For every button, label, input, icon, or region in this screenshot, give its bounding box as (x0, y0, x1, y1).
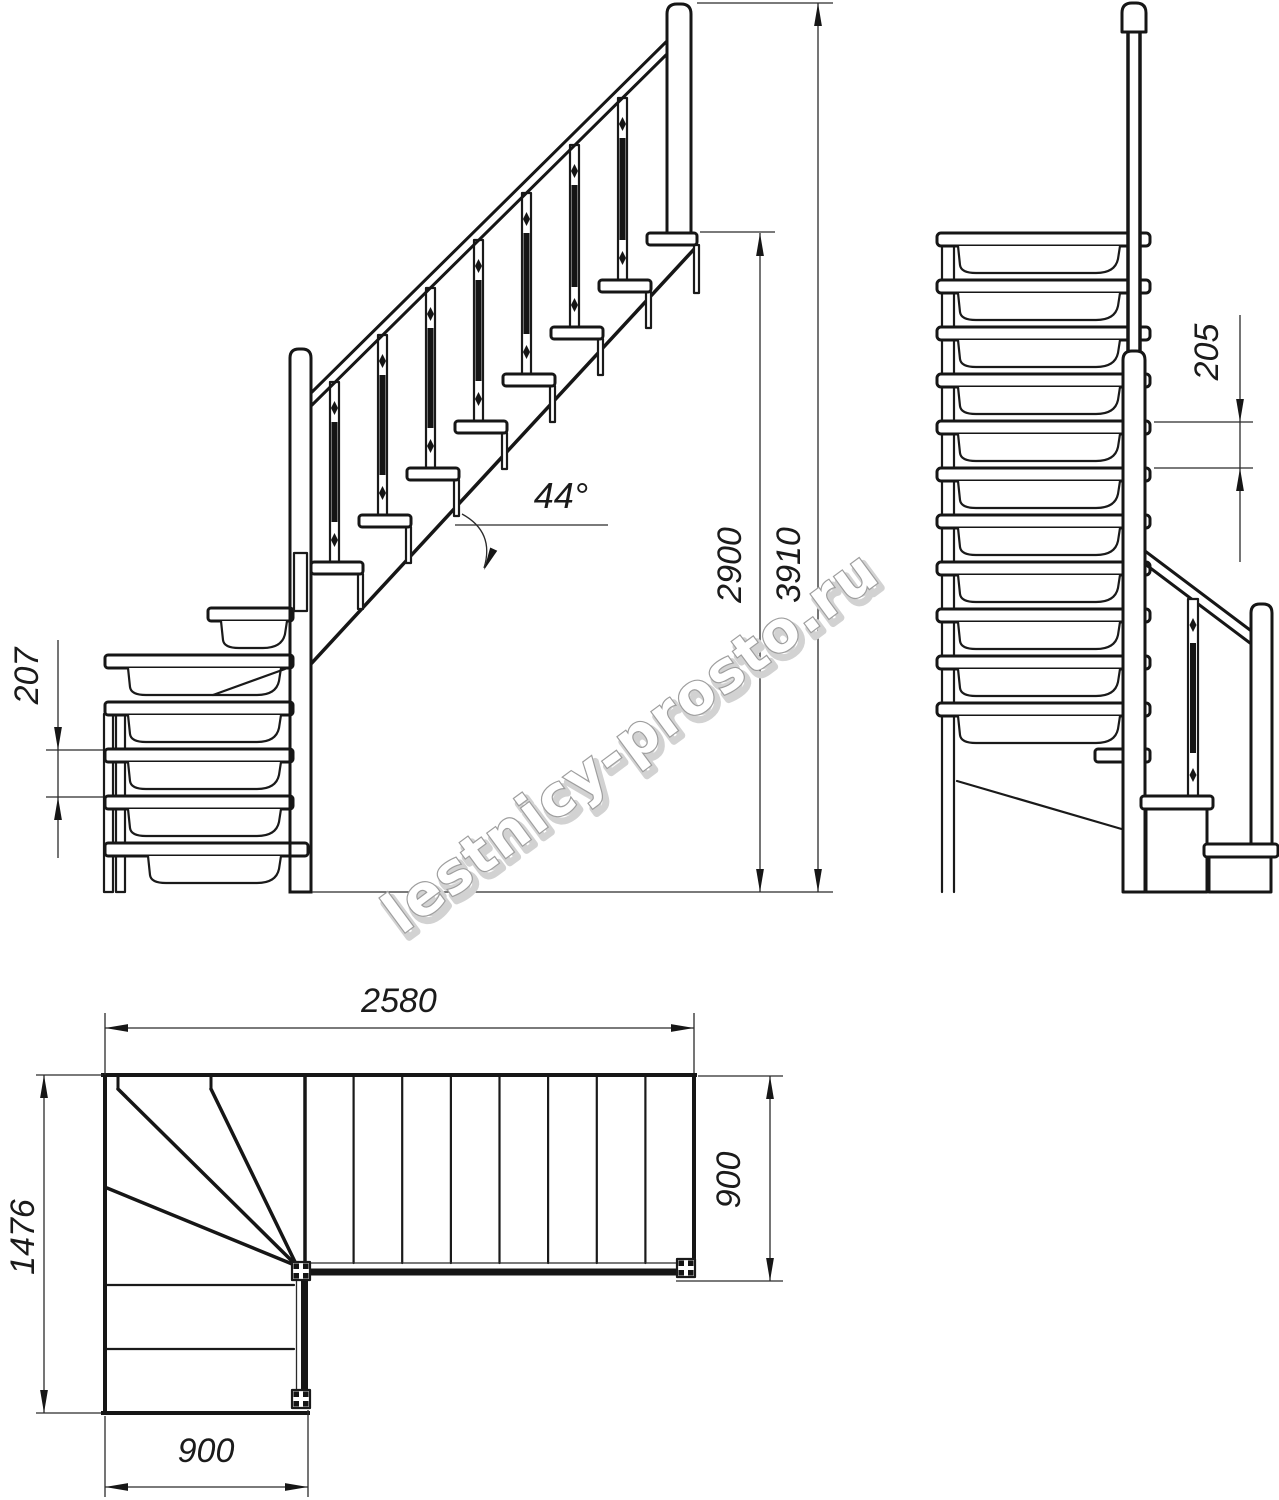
plan-end-newel (677, 1259, 695, 1277)
front-elevation-view (937, 3, 1278, 892)
angle-annotation: 44° (455, 475, 608, 572)
front-winder-edge (957, 781, 1125, 830)
front-baluster (1188, 599, 1198, 797)
dimension-landing-height: 2900 (700, 232, 775, 892)
dim-900-right-label: 900 (710, 1152, 748, 1209)
plan-corner-newel (292, 1262, 310, 1280)
side-winder-steps (104, 608, 308, 892)
dimension-total-run: 2580 (105, 982, 694, 1075)
front-upper-handrail (1128, 30, 1140, 352)
dim-207-label: 207 (8, 647, 46, 706)
plan-lower-treads (107, 1285, 294, 1349)
plan-view (101, 1073, 697, 1413)
plan-handrails (297, 1263, 678, 1390)
dimension-plan-depth: 1476 (4, 1075, 103, 1413)
plan-outline (101, 1073, 697, 1413)
front-handrail-cap (1122, 3, 1146, 32)
dim-900-bottom-label: 900 (178, 1432, 235, 1470)
side-top-newel-post (667, 4, 691, 233)
plan-newel-posts (292, 1259, 695, 1408)
dimension-total-height: 3910 (697, 3, 833, 892)
plan-winder-fan (107, 1077, 297, 1266)
watermark-text: lestnicy-prosto.ru (371, 538, 891, 946)
front-right-newel-post (1251, 604, 1272, 847)
dimension-winder-rise: 207 (8, 640, 103, 858)
plan-entry-newel (292, 1390, 310, 1408)
side-corner-post-sleeve (294, 553, 307, 611)
blueprint-page: 2580 1476 900 900 (0, 0, 1279, 1500)
dim-2580-label: 2580 (360, 982, 437, 1020)
side-handrail (311, 40, 668, 406)
dimension-straight-rise: 205 (1154, 315, 1253, 562)
side-upper-treads (311, 233, 697, 574)
side-elevation-view (104, 4, 833, 892)
dim-2900-label: 2900 (711, 527, 749, 604)
stair-blueprint: 2580 1476 900 900 (0, 0, 1279, 1500)
front-lower-handrail (1145, 551, 1254, 646)
dimension-flight-width-bottom: 900 (105, 1410, 308, 1497)
front-mid-newel-post (1123, 351, 1145, 892)
angle-label: 44° (534, 475, 588, 516)
plan-flight-treads (305, 1075, 645, 1263)
dim-1476-label: 1476 (4, 1199, 42, 1275)
dim-205-label: 205 (1188, 324, 1226, 382)
watermark: lestnicy-prosto.ru lestnicy-prosto.ru (371, 538, 895, 951)
